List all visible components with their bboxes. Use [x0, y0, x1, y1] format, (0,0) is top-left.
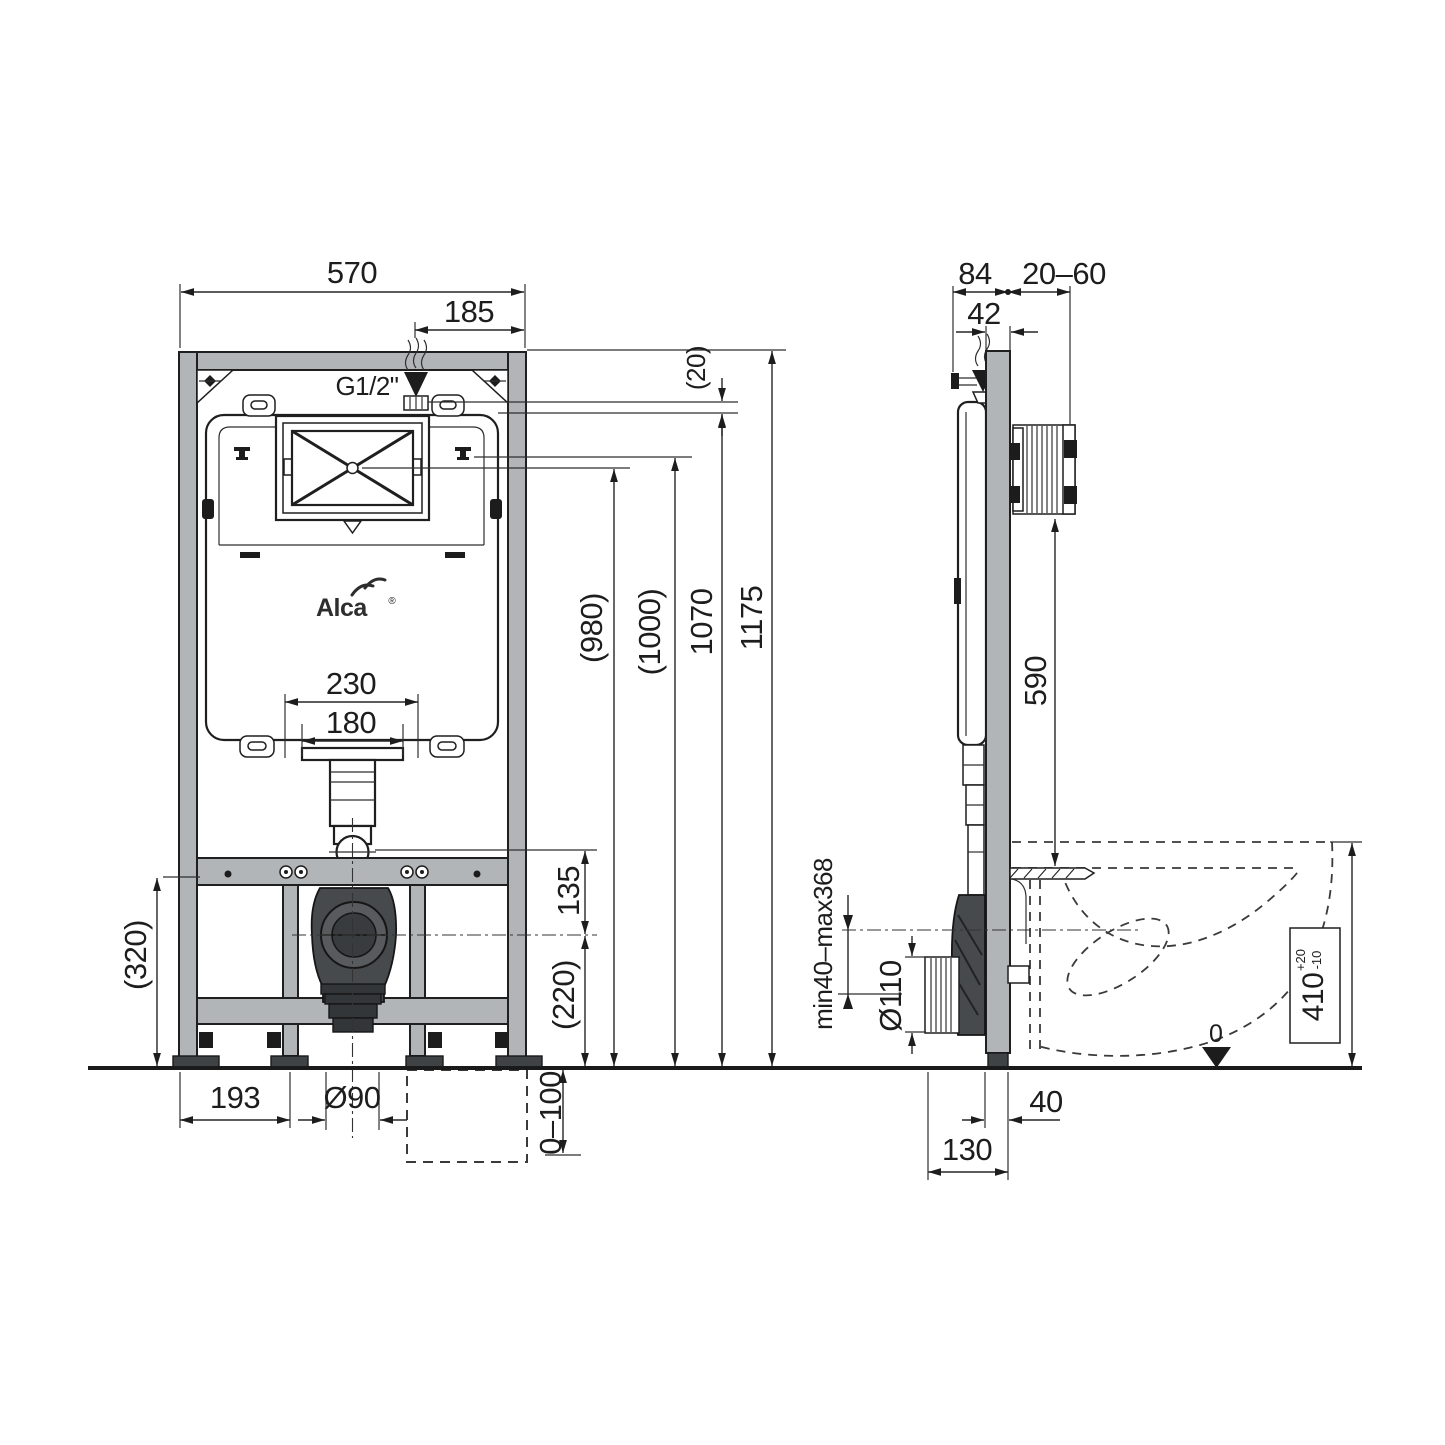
dim-label-top-gap: (20) — [681, 346, 711, 390]
dim-label-foot-span: 193 — [210, 1080, 260, 1115]
dim-label-panel-center-h: (980) — [574, 593, 609, 663]
dash-mark-left — [240, 552, 260, 558]
dim-label-frame-h: 1175 — [734, 586, 769, 651]
dim-label-flush-drop: 590 — [1018, 656, 1053, 706]
dim-label-bowl-tol-down: -10 — [1309, 951, 1324, 970]
cistern-side — [958, 402, 986, 745]
dim-label-profile-depth: 42 — [967, 296, 1000, 331]
dim-label-side-drain-dia: Ø110 — [873, 960, 908, 1032]
wc-fixing-clip — [1008, 966, 1029, 983]
dim-label-drain-axis-h: (220) — [546, 960, 581, 1030]
side-latch-left — [202, 499, 214, 519]
dim-label-pipe-gap: 135 — [551, 866, 586, 916]
dim-label-flush-inner: 180 — [326, 705, 376, 740]
front-frame-top-beam — [179, 352, 526, 370]
bowl-height-box: 410 +20 -10 — [1290, 928, 1340, 1043]
floor-zero-label: 0 — [1209, 1020, 1223, 1048]
dim-label-bowl-tol-up: +20 — [1293, 949, 1308, 971]
drain-outlet-pipe — [925, 957, 959, 1033]
inner-leg-right — [410, 868, 425, 1056]
installation-frame-drawing: Alca ® — [0, 0, 1445, 1445]
right-corner-gusset — [472, 370, 508, 403]
wc-mounting-bracket — [1010, 868, 1094, 944]
flush-pipe-side — [963, 745, 984, 895]
technical-drawing-page: Alca ® — [0, 0, 1445, 1445]
left-corner-gusset — [197, 370, 233, 403]
leg-clamp — [428, 1032, 442, 1048]
front-frame-right-upright — [508, 352, 526, 1058]
leg-clamp — [199, 1032, 213, 1048]
dim-label-bowl-height: 410 — [1297, 973, 1330, 1022]
leg-clamp — [495, 1032, 509, 1048]
dim-label-wall-gap: 20–60 — [1022, 256, 1106, 291]
side-frame-profile — [986, 351, 1010, 1053]
dim-label-flush-outer: 230 — [326, 666, 376, 701]
side-latch-right — [490, 499, 502, 519]
dim-line-min40-max368 — [843, 895, 853, 1009]
dim-label-fixing-h: (1000) — [632, 589, 667, 676]
dim-label-drain-range: min40–max368 — [808, 858, 838, 1030]
access-panel — [276, 416, 429, 533]
cistern-side-clip — [954, 578, 961, 604]
dim-label-foot-depth: 40 — [1029, 1084, 1063, 1119]
dim-label-depth: 84 — [958, 256, 992, 291]
inner-leg-left — [283, 868, 298, 1056]
side-foot — [988, 1053, 1008, 1068]
dim-label-base-depth: 130 — [942, 1132, 992, 1167]
leg-clamp — [267, 1032, 281, 1048]
alca-logo-text: Alca — [316, 594, 368, 622]
front-view: Alca ® — [173, 338, 597, 1162]
side-view: 0 — [842, 334, 1332, 1068]
dash-mark-right — [445, 552, 465, 558]
dim-label-inlet-h: 1070 — [684, 588, 719, 655]
water-inlet-flange — [404, 396, 428, 410]
side-dimensions: 84 20–60 42 590 min40–max368 Ø110 40 130… — [808, 256, 1362, 1180]
front-frame-left-upright — [179, 352, 197, 1058]
leg-extension-dashed-zone — [407, 1070, 527, 1162]
dim-label-inlet-thread: G1/2" — [335, 371, 398, 401]
dim-label-width: 570 — [327, 255, 377, 290]
dim-label-leg-adjust: 0–100 — [533, 1071, 568, 1155]
dim-label-inlet-offset: 185 — [444, 294, 494, 329]
corrugated-sleeve — [1010, 425, 1077, 514]
registered-mark: ® — [388, 596, 396, 607]
dim-label-drain-dia: Ø90 — [323, 1080, 380, 1115]
dim-label-lower-section: (320) — [118, 920, 153, 990]
